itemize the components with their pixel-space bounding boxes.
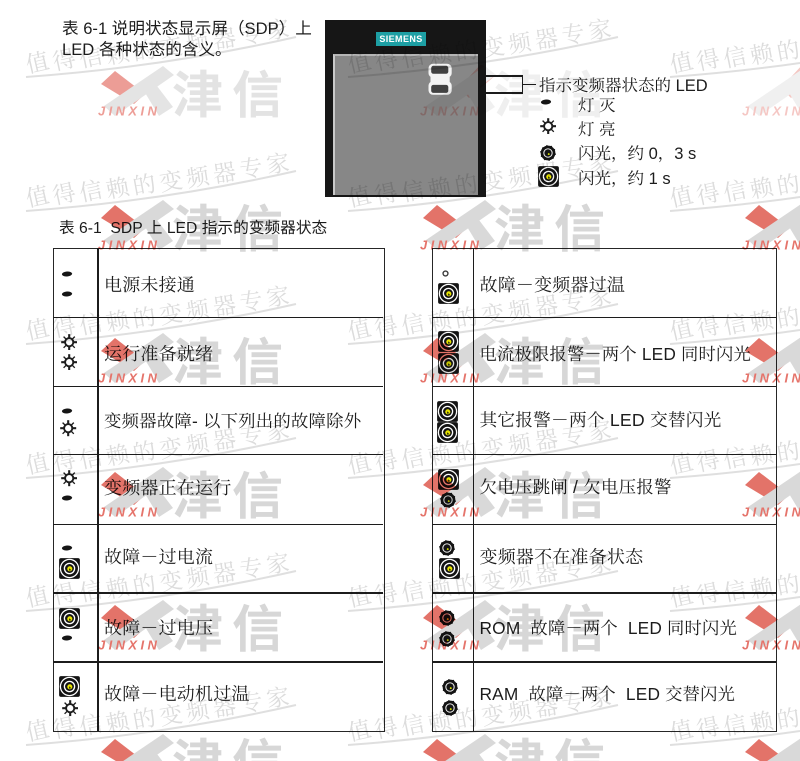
svg-text:得: 得: [371, 307, 401, 344]
svg-text:频: 频: [506, 691, 534, 727]
svg-text:器: 器: [210, 553, 238, 589]
svg-text:变: 变: [479, 562, 507, 598]
svg-text:变: 变: [479, 695, 507, 731]
svg-text:频: 频: [506, 558, 534, 594]
svg-text:的: 的: [452, 31, 481, 68]
svg-text:变: 变: [157, 295, 185, 331]
svg-text:器: 器: [210, 286, 238, 322]
svg-text:值: 值: [346, 42, 374, 79]
svg-text:赖: 赖: [103, 435, 132, 472]
svg-text:频: 频: [184, 24, 212, 60]
svg-text:赖: 赖: [747, 34, 776, 71]
svg-text:器: 器: [532, 153, 560, 189]
svg-text:赖: 赖: [425, 435, 454, 472]
svg-text:JINXIN: JINXIN: [742, 638, 800, 653]
svg-text:赖: 赖: [747, 168, 776, 205]
svg-text:变: 变: [157, 28, 185, 64]
svg-text:得: 得: [49, 173, 79, 210]
svg-text:值: 值: [346, 576, 374, 613]
svg-text:值: 值: [346, 309, 374, 346]
svg-text:家: 家: [586, 679, 613, 714]
svg-text:信: 信: [720, 571, 749, 608]
svg-text:家: 家: [586, 545, 613, 580]
svg-text:的: 的: [452, 699, 481, 736]
svg-text:专: 专: [559, 415, 586, 451]
svg-text:JINXIN: JINXIN: [98, 104, 160, 119]
svg-text:器: 器: [210, 687, 238, 723]
svg-text:信: 信: [398, 171, 427, 208]
svg-text:变: 变: [157, 428, 185, 464]
svg-text:信: 信: [398, 438, 427, 475]
svg-text:的: 的: [130, 699, 159, 736]
svg-text:器: 器: [210, 19, 238, 55]
svg-text:JINXIN: JINXIN: [98, 638, 160, 653]
svg-text:赖: 赖: [103, 702, 132, 739]
svg-text:JINXIN: JINXIN: [742, 371, 800, 386]
svg-text:赖: 赖: [425, 702, 454, 739]
svg-text:赖: 赖: [747, 301, 776, 338]
svg-text:赖: 赖: [425, 168, 454, 205]
svg-text:家: 家: [264, 679, 291, 714]
svg-text:器: 器: [532, 420, 560, 456]
svg-text:器: 器: [210, 153, 238, 189]
svg-text:家: 家: [264, 278, 291, 313]
svg-text:变: 变: [479, 28, 507, 64]
svg-text:家: 家: [264, 11, 291, 46]
svg-text:值: 值: [24, 576, 52, 613]
svg-text:得: 得: [49, 40, 79, 77]
svg-text:信: 信: [76, 571, 105, 608]
svg-text:信: 信: [720, 705, 749, 742]
svg-text:值: 值: [668, 710, 696, 747]
svg-text:得: 得: [693, 173, 723, 210]
svg-text:专: 专: [559, 148, 586, 184]
svg-text:的: 的: [130, 298, 159, 335]
svg-text:值: 值: [24, 176, 52, 213]
svg-text:家: 家: [586, 11, 613, 46]
svg-text:的: 的: [774, 298, 800, 335]
svg-text:的: 的: [452, 432, 481, 469]
svg-text:信: 信: [76, 304, 105, 341]
svg-text:频: 频: [184, 558, 212, 594]
svg-text:得: 得: [693, 574, 723, 611]
svg-text:家: 家: [264, 412, 291, 447]
svg-text:专: 专: [559, 282, 586, 318]
svg-text:信: 信: [720, 37, 749, 74]
svg-text:赖: 赖: [425, 34, 454, 71]
svg-text:值: 值: [668, 176, 696, 213]
svg-text:赖: 赖: [103, 301, 132, 338]
svg-text:赖: 赖: [425, 568, 454, 605]
svg-text:JINXIN: JINXIN: [420, 371, 482, 386]
svg-text:家: 家: [586, 412, 613, 447]
svg-text:赖: 赖: [103, 34, 132, 71]
svg-text:JINXIN: JINXIN: [98, 237, 160, 252]
svg-text:信: 信: [76, 438, 105, 475]
svg-text:值: 值: [346, 710, 374, 747]
svg-text:得: 得: [693, 40, 723, 77]
svg-text:得: 得: [371, 40, 401, 77]
svg-text:赖: 赖: [747, 702, 776, 739]
svg-text:信: 信: [76, 705, 105, 742]
svg-text:JINXIN: JINXIN: [98, 371, 160, 386]
svg-text:信: 信: [398, 705, 427, 742]
svg-text:JINXIN: JINXIN: [742, 104, 800, 119]
svg-text:频: 频: [506, 291, 534, 327]
svg-text:的: 的: [452, 298, 481, 335]
svg-text:值: 值: [24, 42, 52, 79]
svg-text:专: 专: [237, 148, 264, 184]
svg-text:JINXIN: JINXIN: [742, 504, 800, 519]
svg-text:的: 的: [774, 432, 800, 469]
svg-text:赖: 赖: [103, 568, 132, 605]
svg-text:得: 得: [49, 707, 79, 744]
svg-text:的: 的: [130, 31, 159, 68]
svg-text:专: 专: [237, 415, 264, 451]
svg-text:变: 变: [157, 695, 185, 731]
svg-text:得: 得: [371, 707, 401, 744]
svg-text:器: 器: [210, 420, 238, 456]
svg-text:家: 家: [264, 545, 291, 580]
svg-text:家: 家: [586, 145, 613, 180]
svg-text:赖: 赖: [747, 435, 776, 472]
svg-text:变: 变: [479, 295, 507, 331]
svg-text:专: 专: [237, 682, 264, 718]
svg-text:信: 信: [398, 304, 427, 341]
svg-text:家: 家: [264, 145, 291, 180]
svg-text:值: 值: [668, 576, 696, 613]
svg-text:得: 得: [371, 173, 401, 210]
svg-text:变: 变: [479, 428, 507, 464]
svg-text:频: 频: [184, 157, 212, 193]
svg-text:值: 值: [346, 443, 374, 480]
svg-text:信: 信: [720, 171, 749, 208]
svg-text:频: 频: [184, 691, 212, 727]
svg-text:得: 得: [693, 707, 723, 744]
svg-text:得: 得: [49, 440, 79, 477]
svg-text:赖: 赖: [747, 568, 776, 605]
svg-text:信: 信: [398, 37, 427, 74]
svg-text:JINXIN: JINXIN: [420, 638, 482, 653]
svg-text:得: 得: [49, 307, 79, 344]
svg-text:的: 的: [130, 165, 159, 202]
svg-text:值: 值: [668, 42, 696, 79]
svg-text:得: 得: [371, 440, 401, 477]
svg-text:信: 信: [720, 438, 749, 475]
svg-text:变: 变: [157, 562, 185, 598]
svg-text:JINXIN: JINXIN: [420, 504, 482, 519]
svg-text:赖: 赖: [425, 301, 454, 338]
svg-text:信: 信: [720, 304, 749, 341]
svg-text:频: 频: [506, 24, 534, 60]
svg-text:JINXIN: JINXIN: [98, 504, 160, 519]
svg-text:的: 的: [774, 565, 800, 602]
svg-text:的: 的: [452, 165, 481, 202]
svg-text:器: 器: [532, 687, 560, 723]
svg-text:专: 专: [237, 15, 264, 51]
svg-text:器: 器: [532, 553, 560, 589]
svg-text:得: 得: [49, 574, 79, 611]
svg-text:变: 变: [479, 161, 507, 197]
svg-text:器: 器: [532, 19, 560, 55]
svg-text:的: 的: [774, 165, 800, 202]
svg-text:家: 家: [586, 278, 613, 313]
svg-text:的: 的: [774, 699, 800, 736]
svg-text:值: 值: [346, 176, 374, 213]
svg-text:的: 的: [452, 565, 481, 602]
svg-text:频: 频: [184, 424, 212, 460]
svg-text:专: 专: [559, 682, 586, 718]
svg-text:变: 变: [157, 161, 185, 197]
svg-text:信: 信: [398, 571, 427, 608]
svg-text:频: 频: [506, 424, 534, 460]
svg-text:JINXIN: JINXIN: [742, 237, 800, 252]
svg-text:值: 值: [24, 309, 52, 346]
svg-text:专: 专: [237, 549, 264, 585]
svg-text:的: 的: [130, 432, 159, 469]
svg-text:的: 的: [130, 565, 159, 602]
svg-text:得: 得: [693, 440, 723, 477]
svg-text:赖: 赖: [103, 168, 132, 205]
svg-text:信: 信: [76, 37, 105, 74]
svg-text:专: 专: [559, 15, 586, 51]
svg-text:JINXIN: JINXIN: [420, 237, 482, 252]
svg-text:专: 专: [559, 549, 586, 585]
svg-text:信: 信: [76, 171, 105, 208]
svg-text:值: 值: [668, 443, 696, 480]
svg-text:得: 得: [371, 574, 401, 611]
svg-text:得: 得: [693, 307, 723, 344]
svg-text:值: 值: [24, 710, 52, 747]
svg-text:频: 频: [506, 157, 534, 193]
svg-text:频: 频: [184, 291, 212, 327]
svg-text:专: 专: [237, 282, 264, 318]
svg-text:值: 值: [668, 309, 696, 346]
svg-text:值: 值: [24, 443, 52, 480]
svg-text:器: 器: [532, 286, 560, 322]
svg-text:JINXIN: JINXIN: [420, 104, 482, 119]
svg-text:的: 的: [774, 31, 800, 68]
